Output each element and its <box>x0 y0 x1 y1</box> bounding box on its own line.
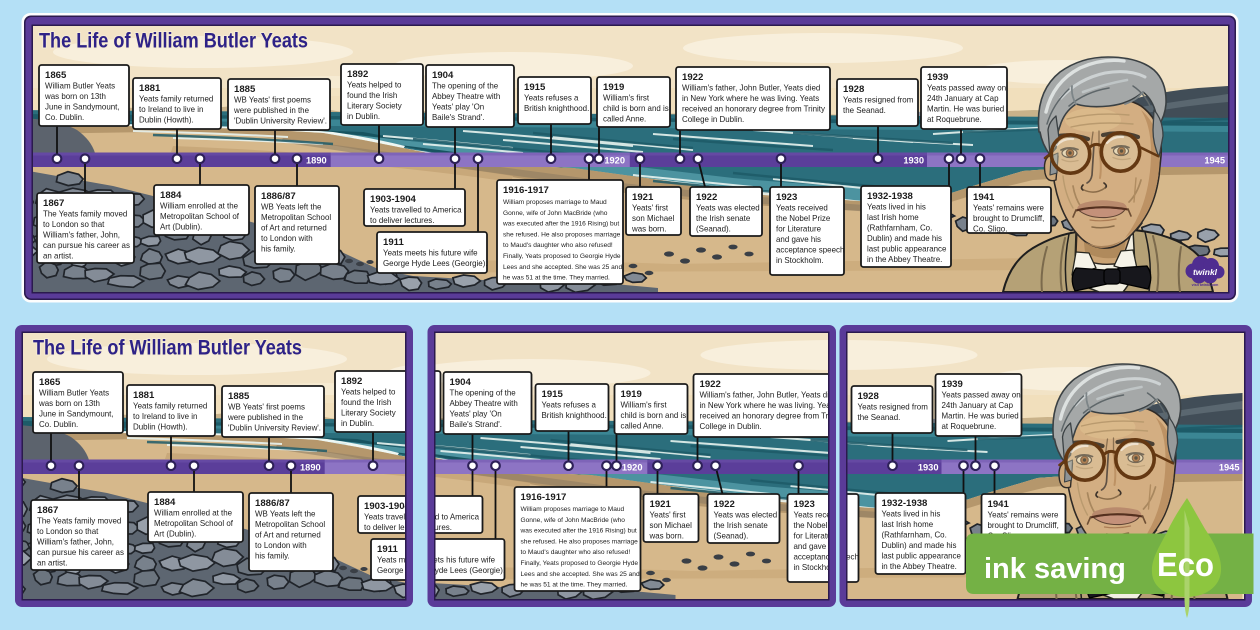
svg-text:Eco: Eco <box>1157 546 1214 583</box>
svg-text:ink saving: ink saving <box>984 553 1126 585</box>
